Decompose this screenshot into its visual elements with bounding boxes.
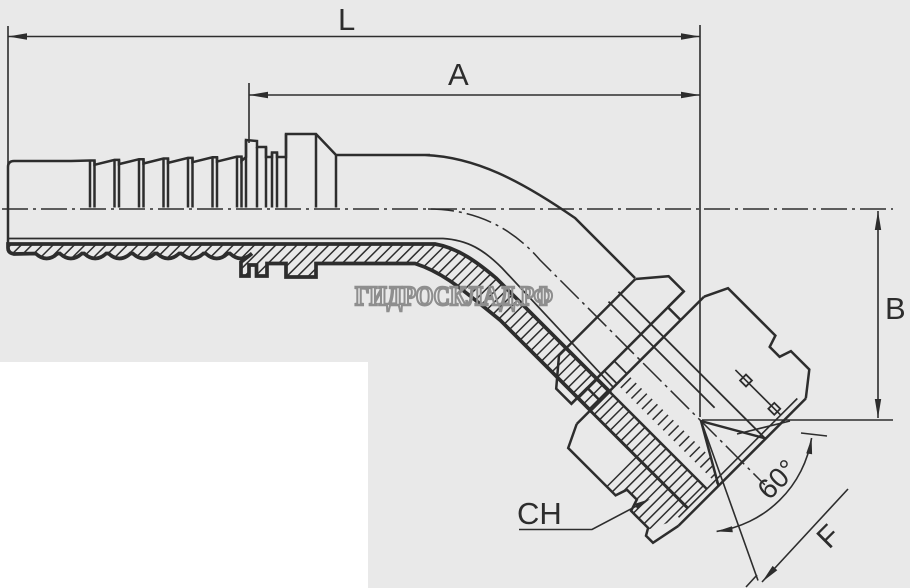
svg-text:L: L: [338, 2, 355, 37]
svg-text:CH: CH: [517, 496, 562, 531]
svg-text:ГИДРОСКЛАД.РФ: ГИДРОСКЛАД.РФ: [355, 281, 553, 311]
svg-text:A: A: [448, 57, 469, 92]
svg-text:B: B: [885, 291, 906, 326]
